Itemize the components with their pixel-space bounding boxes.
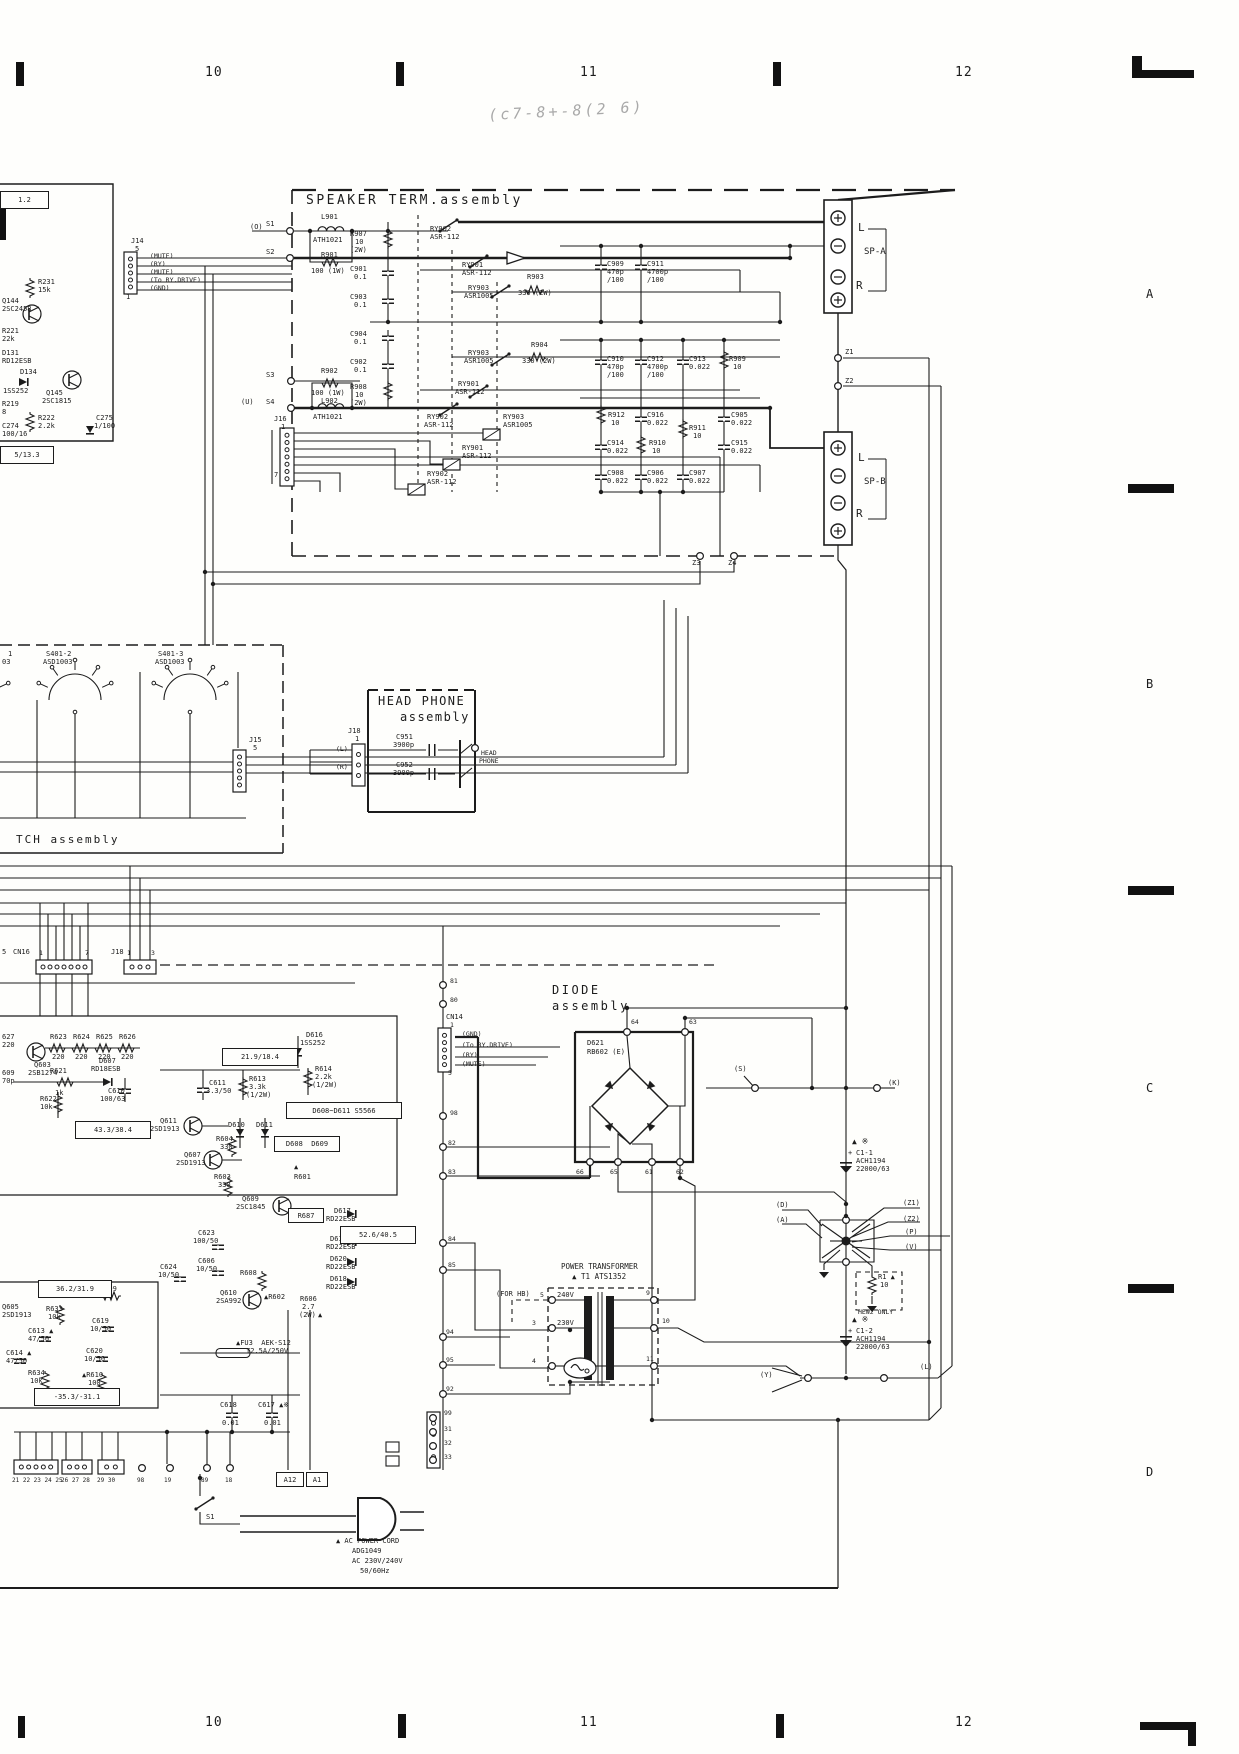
schematic-label: Z3 xyxy=(692,560,700,567)
switch-assembly-title: TCH assembly xyxy=(16,834,119,846)
grid-number-bottom: 12 xyxy=(955,1716,973,1730)
schematic-label: (L) xyxy=(920,1364,933,1371)
schematic-label: ASR1005 xyxy=(464,293,494,300)
schematic-label: 33 xyxy=(444,1454,452,1461)
schematic-label: 100 (1W) xyxy=(311,268,345,275)
schematic-label: 3 xyxy=(532,1320,536,1327)
schematic-label: 100/16 xyxy=(2,431,27,438)
schematic-label: ASR-112 xyxy=(455,389,485,396)
grid-number-top: 12 xyxy=(955,66,973,80)
schematic-label: L902 xyxy=(321,398,338,405)
schematic-label: ATH1021 xyxy=(313,237,343,244)
grid-row-letter: D xyxy=(1146,1466,1153,1479)
schematic-label: (Z2) xyxy=(903,1216,920,1223)
schematic-label: ADG1049 xyxy=(352,1548,382,1555)
schematic-label: 80 xyxy=(450,997,458,1004)
schematic-label: 0.022 xyxy=(689,364,710,371)
schematic-label: 100 xyxy=(88,1380,101,1387)
schematic-label: 81 xyxy=(450,978,458,985)
schematic-label: 0.022 xyxy=(647,478,668,485)
schematic-label: 98 xyxy=(137,1478,144,1484)
schematic-label: 1/100 xyxy=(94,423,115,430)
schematic-label: 15k xyxy=(38,287,51,294)
schematic-label: 0.022 xyxy=(731,420,752,427)
schematic-label: 22000/63 xyxy=(856,1344,890,1351)
schematic-label: ▲R602 xyxy=(264,1294,285,1301)
schematic-label: 10/50 xyxy=(90,1326,111,1333)
grid-number-top: 10 xyxy=(205,66,223,80)
schematic-label: 7 xyxy=(274,472,278,479)
schematic-label: (FOR HB) xyxy=(496,1291,530,1298)
schematic-label: 1 xyxy=(126,294,130,301)
schematic-label: ASR1005 xyxy=(464,358,494,365)
speaker-term-assembly-title: SPEAKER TERM.assembly xyxy=(306,194,523,208)
schematic-label: 2SA992 xyxy=(216,1298,241,1305)
boxed-value: 1.2 xyxy=(0,191,49,209)
boxed-value: R687 xyxy=(288,1208,324,1223)
schematic-label: T2.5A/250V xyxy=(246,1348,288,1355)
schematic-label: C617 ▲※ xyxy=(258,1402,289,1409)
schematic-label: 98 xyxy=(450,1110,458,1117)
schematic-label: 50/60Hz xyxy=(360,1568,390,1575)
schematic-label: 18 xyxy=(225,1478,232,1484)
schematic-label: 1 xyxy=(355,736,359,743)
schematic-label: 220 xyxy=(52,1054,65,1061)
schematic-label: (U) xyxy=(241,399,254,406)
boxed-value: 36.2/31.9 xyxy=(38,1280,112,1298)
schematic-label: 61 xyxy=(645,1169,653,1176)
schematic-label: 10k xyxy=(40,1104,53,1111)
schematic-label: ASR-112 xyxy=(427,479,457,486)
schematic-label: RD22ESB xyxy=(326,1244,356,1251)
ac-power-cord-note: ▲ AC POWER CORD xyxy=(336,1538,399,1545)
schematic-label: 26 27 28 xyxy=(61,1478,90,1484)
schematic-label: 22k xyxy=(2,336,15,343)
schematic-label: 5 xyxy=(540,1292,544,1299)
schematic-label: 47/50 xyxy=(28,1336,49,1343)
schematic-label: 1 xyxy=(450,1022,454,1029)
boxed-value: D608~D611 S5566 xyxy=(286,1102,402,1119)
schematic-label: R625 xyxy=(96,1034,113,1041)
schematic-label: 10 xyxy=(880,1282,888,1289)
schematic-label: 0.1 xyxy=(354,367,367,374)
schematic-label: 0.1 xyxy=(354,339,367,346)
schematic-label: 240V xyxy=(557,1292,574,1299)
schematic-label: R608 xyxy=(240,1270,257,1277)
schematic-label: 0.022 xyxy=(731,448,752,455)
schematic-label: ASD1003 xyxy=(155,659,185,666)
schematic-label: S4 xyxy=(266,399,274,406)
schematic-label: 4 xyxy=(532,1358,536,1365)
schematic-label: R xyxy=(856,508,863,520)
schematic-label: 1SS252 xyxy=(300,1040,325,1047)
schematic-label: (RY) xyxy=(462,1052,478,1059)
schematic-label: CN14 xyxy=(446,1014,463,1021)
schematic-label: 3900p xyxy=(393,742,414,749)
schematic-label: R624 xyxy=(73,1034,90,1041)
boxed-value: A1 xyxy=(306,1472,328,1487)
schematic-label: RD22ESB xyxy=(326,1284,356,1291)
schematic-label: S1 xyxy=(206,1514,214,1521)
schematic-label: 0.022 xyxy=(689,478,710,485)
schematic-label: PHONE xyxy=(479,758,499,765)
schematic-label: 10 xyxy=(611,420,619,427)
schematic-label: 10/50 xyxy=(196,1266,217,1273)
schematic-label: 220 xyxy=(2,1042,15,1049)
schematic-label: 2SC2458 xyxy=(2,306,32,313)
schematic-label: 5 xyxy=(135,246,139,253)
schematic-label: 92 xyxy=(446,1386,454,1393)
schematic-label: /100 xyxy=(647,277,664,284)
schematic-label: 10/50 xyxy=(84,1356,105,1363)
schematic-label: Z1 xyxy=(845,349,853,356)
schematic-label: 10 xyxy=(652,448,660,455)
schematic-label: 64 xyxy=(631,1019,639,1026)
schematic-label: 5 xyxy=(448,1070,452,1077)
schematic-label: ▲ xyxy=(294,1164,298,1171)
boxed-value: D608 D609 xyxy=(274,1136,340,1152)
boxed-value: A12 xyxy=(276,1472,304,1487)
schematic-label: (MUTE) xyxy=(150,269,173,276)
schematic-label: ASD1003 xyxy=(43,659,73,666)
schematic-label: 10 xyxy=(662,1318,670,1325)
schematic-label: 10k xyxy=(30,1378,43,1385)
schematic-label: 1 xyxy=(39,950,43,957)
schematic-label: (S) xyxy=(734,1066,747,1073)
grid-row-letter: A xyxy=(1146,288,1153,301)
schematic-label: 0.1 xyxy=(354,302,367,309)
schematic-label: D134 xyxy=(20,369,37,376)
schematic-label: 3 xyxy=(151,950,155,957)
schematic-label: (MUTE) xyxy=(150,253,173,260)
schematic-label: AC 230V/240V xyxy=(352,1558,403,1565)
schematic-label: (Y) xyxy=(760,1372,773,1379)
schematic-label: (To RY.DRIVE) xyxy=(462,1042,513,1049)
schematic-label: (V) xyxy=(905,1244,918,1251)
schematic-label: 2SD1913 xyxy=(150,1126,180,1133)
schematic-label: 2SC1815 xyxy=(42,398,72,405)
schematic-label: J18 xyxy=(111,949,124,956)
schematic-label: (Z1) xyxy=(903,1200,920,1207)
schematic-label: 21 22 23 24 25 xyxy=(12,1478,63,1484)
boxed-value: 5/13.3 xyxy=(0,446,54,464)
schematic-label: ▲ T1 ATS1352 xyxy=(572,1273,626,1281)
schematic-label: RD12ESB xyxy=(2,358,32,365)
grid-number-top: 11 xyxy=(580,66,598,80)
schematic-label: 330 xyxy=(218,1182,231,1189)
schematic-label: 0.1 xyxy=(354,274,367,281)
schematic-label: 330 (2W) xyxy=(518,290,552,297)
schematic-label: + xyxy=(848,1328,852,1335)
schematic-label: 0.022 xyxy=(607,478,628,485)
schematic-label: R626 xyxy=(119,1034,136,1041)
schematic-label: (2W) xyxy=(350,400,367,407)
schematic-label: 3.3/50 xyxy=(206,1088,231,1095)
schematic-label: /100 xyxy=(607,372,624,379)
schematic-label: 10/50 xyxy=(158,1272,179,1279)
boxed-value: 52.6/40.5 xyxy=(340,1226,416,1244)
schematic-label: (L) xyxy=(336,746,348,753)
schematic-label: S3 xyxy=(266,372,274,379)
boxed-value: -35.3/-31.1 xyxy=(34,1388,120,1406)
schematic-label: HEAD xyxy=(481,750,497,757)
schematic-label: R902 xyxy=(321,368,338,375)
diode-assembly-title: DIODE xyxy=(552,984,601,997)
schematic-label: SP-B xyxy=(864,478,886,487)
schematic-label: (To RY.DRIVE) xyxy=(150,277,201,284)
schematic-label: 1 xyxy=(281,424,285,431)
schematic-label: 19 xyxy=(164,1478,171,1484)
schematic-label: 220 xyxy=(75,1054,88,1061)
schematic-label: RD22ESB xyxy=(326,1216,356,1223)
schematic-label: 3900p xyxy=(393,770,414,777)
schematic-label: 100/50 xyxy=(193,1238,218,1245)
schematic-label: + xyxy=(848,1150,852,1157)
schematic-label: L xyxy=(858,452,865,464)
schematic-label: 1 xyxy=(127,950,131,957)
schematic-label: (P) xyxy=(905,1229,918,1236)
schematic-label: Z2 xyxy=(845,378,853,385)
schematic-label: D621 xyxy=(587,1040,604,1047)
schematic-label: 11 xyxy=(646,1356,654,1363)
grid-row-letter: C xyxy=(1146,1082,1153,1095)
schematic-label: /100 xyxy=(607,277,624,284)
schematic-label: (O) xyxy=(250,224,263,231)
schematic-label: (1/2W) xyxy=(246,1092,271,1099)
schematic-label: ATH1021 xyxy=(313,414,343,421)
schematic-label: C618 xyxy=(220,1402,237,1409)
schematic-label: 0.01 xyxy=(264,1420,281,1427)
schematic-label: 2SC1845 xyxy=(236,1204,266,1211)
schematic-label: R621 xyxy=(50,1068,67,1075)
head-phone-assembly-title: HEAD PHONE xyxy=(378,695,465,708)
schematic-label: ASR-112 xyxy=(462,270,492,277)
schematic-label: ASR-112 xyxy=(430,234,460,241)
schematic-label: 5 xyxy=(253,745,257,752)
power-transformer-title: POWER TRANSFORMER xyxy=(561,1263,638,1271)
schematic-label: R xyxy=(856,280,863,292)
schematic-label: 84 xyxy=(448,1236,456,1243)
schematic-label: 85 xyxy=(448,1262,456,1269)
schematic-label: 330 xyxy=(220,1144,233,1151)
schematic-label: RD18ESB xyxy=(91,1066,121,1073)
schematic-label: 2SD1913 xyxy=(176,1160,206,1167)
schematic-label: ▲ ※ xyxy=(852,1316,868,1324)
schematic-label: 230V xyxy=(557,1320,574,1327)
schematic-label: 10 xyxy=(733,364,741,371)
schematic-label: (A) xyxy=(776,1217,789,1224)
schematic-label: 8 xyxy=(2,409,6,416)
schematic-label: 82 xyxy=(448,1140,456,1147)
schematic-label: S1 xyxy=(266,221,274,228)
schematic-label: (K) xyxy=(888,1080,901,1087)
schematic-label: 10 xyxy=(693,433,701,440)
schematic-label: (GND) xyxy=(150,285,170,292)
schematic-label: 0.022 xyxy=(607,448,628,455)
schematic-label: 66 xyxy=(576,1169,584,1176)
schematic-label: R623 xyxy=(50,1034,67,1041)
schematic-label: ▲ xyxy=(318,1312,322,1319)
schematic-label: 83 xyxy=(448,1169,456,1176)
schematic-label: 03 xyxy=(2,659,10,666)
schematic-label: 29 30 xyxy=(97,1478,115,1484)
schematic-label: (2W) xyxy=(350,247,367,254)
schematic-label: 220 xyxy=(121,1054,134,1061)
schematic-label: (MUTE) xyxy=(462,1061,485,1068)
schematic-label: (D) xyxy=(776,1202,789,1209)
schematic-label: 9 xyxy=(646,1290,650,1297)
grid-row-letter: B xyxy=(1146,678,1153,691)
schematic-label: (1/2W) xyxy=(312,1082,337,1089)
schematic-label: S2 xyxy=(266,249,274,256)
schematic-label: 32 xyxy=(444,1440,452,1447)
schematic-label: 100/63 xyxy=(100,1096,125,1103)
boxed-value: 43.3/38.4 xyxy=(75,1121,151,1139)
schematic-label: (R) xyxy=(336,764,348,771)
schematic-label: 0.022 xyxy=(647,420,668,427)
schematic-label: L901 xyxy=(321,214,338,221)
schematic-label: 5 xyxy=(2,949,6,956)
schematic-label: 2.2k xyxy=(38,423,55,430)
grid-number-bottom: 10 xyxy=(205,1716,223,1730)
schematic-label: assembly xyxy=(400,711,470,724)
schematic-label: (RY) xyxy=(150,261,166,268)
schematic-label: 2SD1913 xyxy=(2,1312,32,1319)
schematic-label: D611 xyxy=(256,1122,273,1129)
schematic-label: RB602 (E) xyxy=(587,1049,625,1056)
schematic-label: 47/50 xyxy=(6,1358,27,1365)
grid-number-bottom: 11 xyxy=(580,1716,598,1730)
schematic-label: 62 xyxy=(676,1169,684,1176)
schematic-label: 70p xyxy=(2,1078,15,1085)
schematic-label: SP-A xyxy=(864,248,886,257)
schematic-label: R903 xyxy=(527,274,544,281)
schematic-label: ASR-112 xyxy=(462,453,492,460)
schematic-label: 65 xyxy=(610,1169,618,1176)
schematic-label: Z4 xyxy=(728,560,736,567)
schematic-label: 89 xyxy=(201,1478,208,1484)
schematic-page: (c7-8+-8(2 6) SPEAKER TERM.assembly(O)S1… xyxy=(0,0,1239,1754)
schematic-label: assembly xyxy=(552,1000,630,1013)
schematic-label: 95 xyxy=(446,1357,454,1364)
schematic-label: 94 xyxy=(446,1329,454,1336)
schematic-label: ASR-112 xyxy=(424,422,454,429)
schematic-label: R601 xyxy=(294,1174,311,1181)
schematic-label: 63 xyxy=(689,1019,697,1026)
schematic-label: 1SS252 xyxy=(3,388,28,395)
schematic-label: ASR1005 xyxy=(503,422,533,429)
schematic-label: CN16 xyxy=(13,949,30,956)
schematic-label: (2W) xyxy=(299,1312,316,1319)
schematic-label: ▲ ※ xyxy=(852,1138,868,1146)
schematic-label: 10k xyxy=(48,1314,61,1321)
schematic-label: 31 xyxy=(444,1426,452,1433)
schematic-label: R904 xyxy=(531,342,548,349)
schematic-label: 0.01 xyxy=(222,1420,239,1427)
schematic-label: L xyxy=(858,222,865,234)
boxed-value: 21.9/18.4 xyxy=(222,1048,298,1066)
schematic-label: 7 xyxy=(85,950,89,957)
schematic-label: RD22ESB xyxy=(326,1264,356,1271)
schematic-label: 330 (2W) xyxy=(522,358,556,365)
schematic-label: 99 xyxy=(444,1410,452,1417)
schematic-label: R901 xyxy=(321,252,338,259)
schematic-label: (GND) xyxy=(462,1031,482,1038)
schematic-label: D610 xyxy=(228,1122,245,1129)
schematic-label: /100 xyxy=(647,372,664,379)
schematic-label: 22000/63 xyxy=(856,1166,890,1173)
